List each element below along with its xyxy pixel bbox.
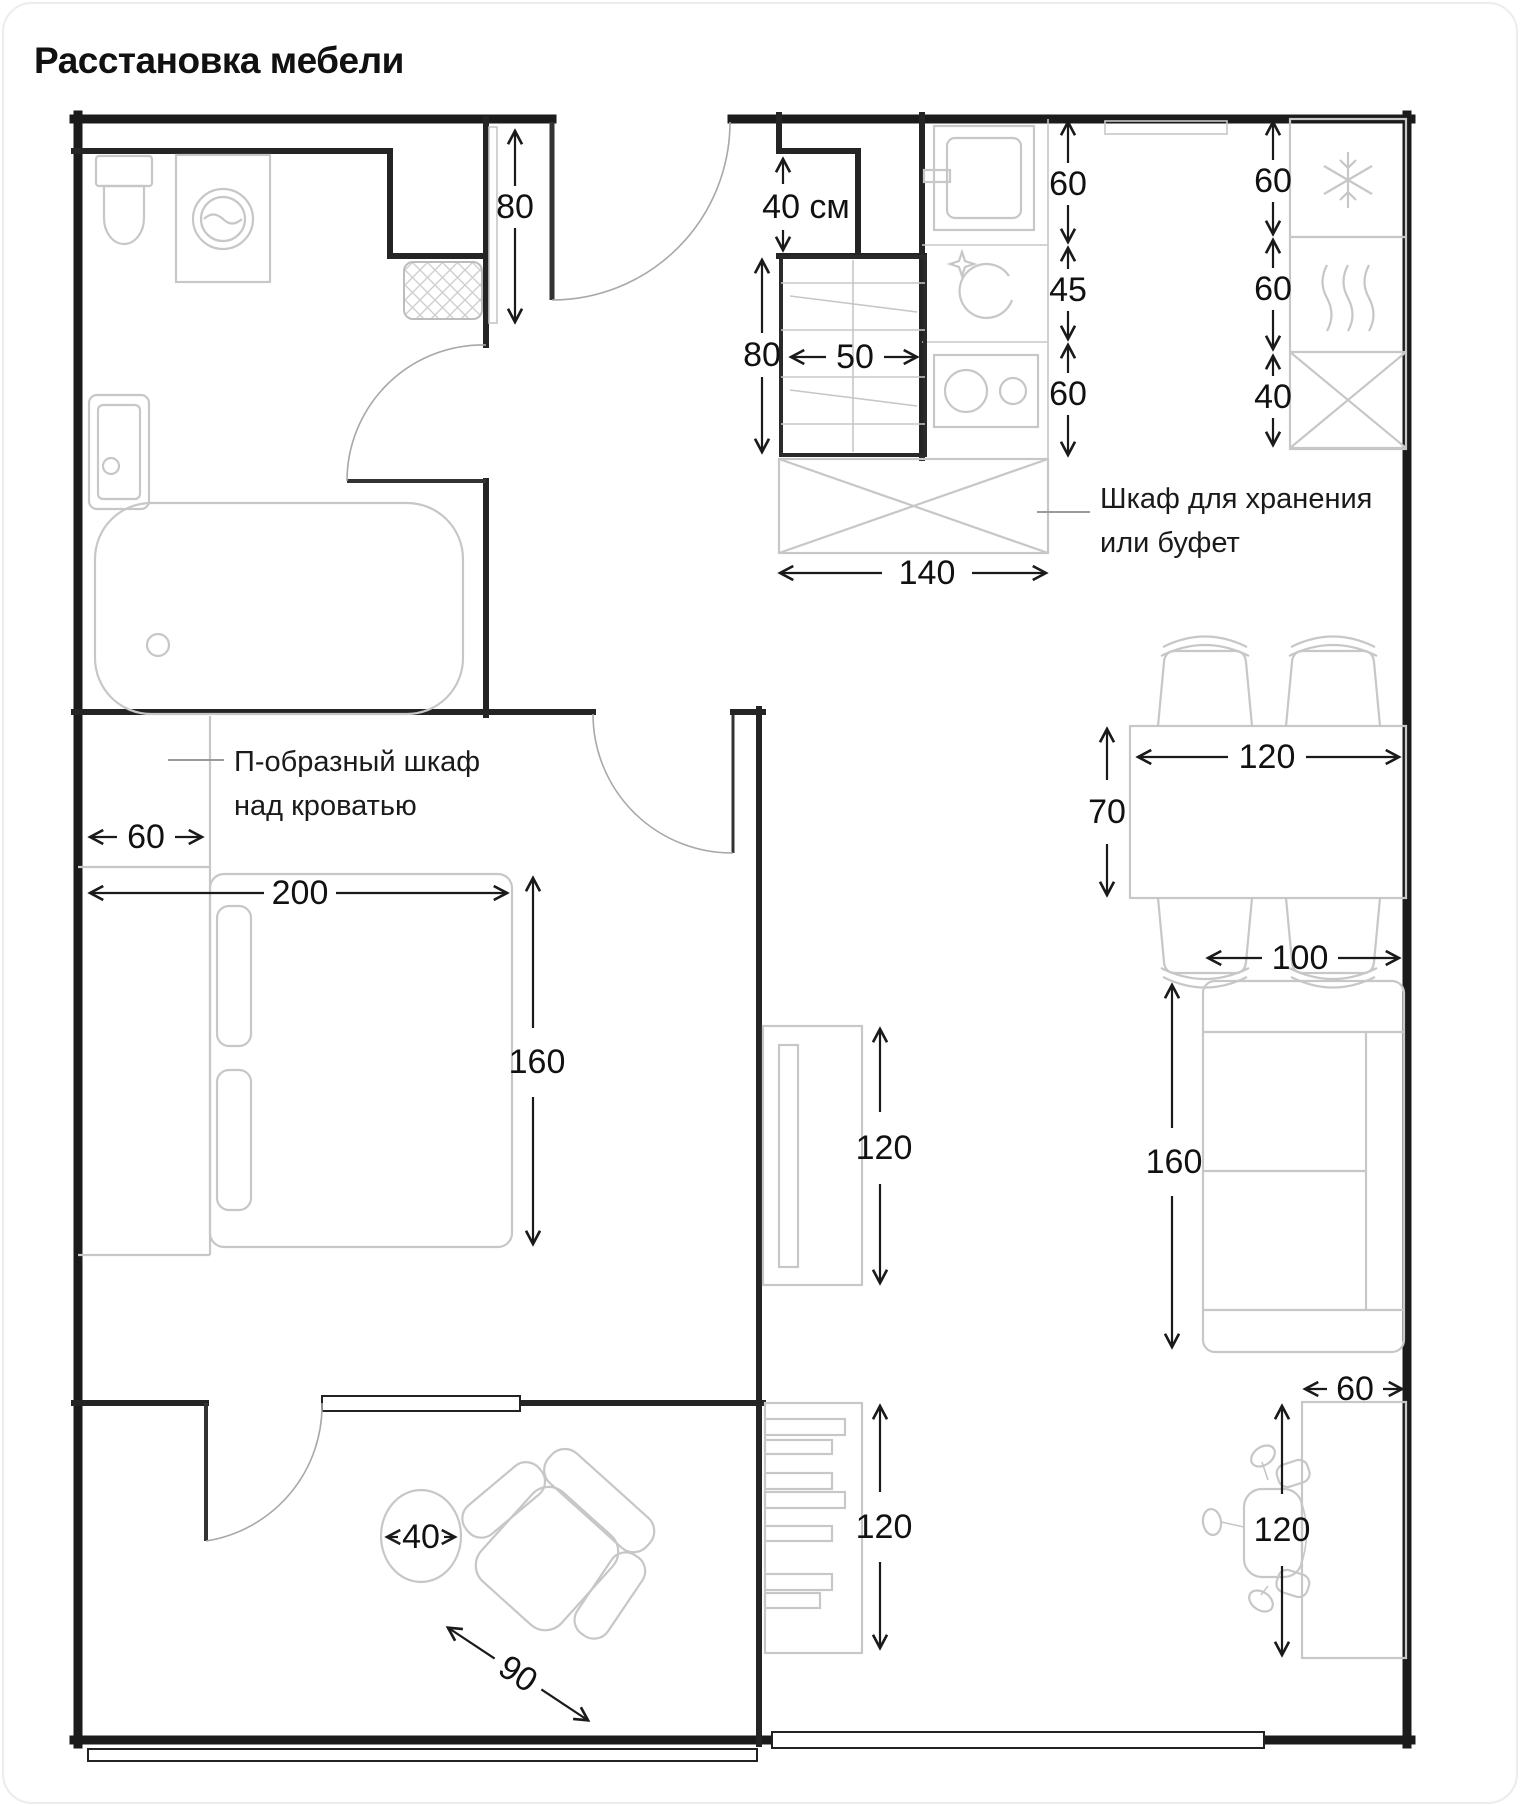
bed [210, 874, 512, 1247]
wardrobe-u-shape [78, 716, 210, 1255]
dim-bed-length: 200 [272, 874, 329, 912]
dim-kitchen-cabinet-width: 50 [836, 338, 874, 376]
dim-balcony-table: 40 [402, 1518, 440, 1556]
steam-waves-icon [1323, 265, 1374, 331]
buffet-crossed-box-icon [779, 459, 1048, 553]
dining-chairs [1158, 637, 1380, 988]
bathtub [95, 503, 463, 714]
bathroom [89, 155, 482, 714]
snowflake-icon [1324, 152, 1372, 208]
dim-armchair-width: 90 [492, 1648, 545, 1701]
interior-walls [74, 115, 924, 1744]
crossed-box-icon [1290, 352, 1406, 448]
pillow [217, 1070, 251, 1210]
doors [206, 122, 733, 1541]
bathroom-door [347, 345, 486, 481]
crosshatch-mat-icon [404, 262, 482, 319]
wardrobe-label-line1: П-образный шкаф [234, 746, 480, 778]
annotations: Шкаф для хранения или буфет П-образный ш… [168, 483, 1372, 822]
dim-buffet-width: 140 [899, 554, 956, 592]
chair [1158, 898, 1252, 988]
dim-dishwasher-width: 45 [1049, 271, 1087, 309]
bedroom-balcony-window [322, 1396, 520, 1411]
washing-machine [176, 155, 270, 282]
dim-duct-niche: 40 см [762, 188, 850, 226]
wardrobe-label-line2: над кроватью [234, 790, 417, 822]
sparkle-wash-icon [950, 252, 1012, 318]
dim-desk-width: 60 [1336, 1370, 1374, 1408]
dimensions: 80 40 см 80 50 60 45 60 140 60 60 4 [90, 122, 1402, 1736]
chair [1158, 637, 1252, 727]
entry-door [552, 122, 730, 300]
tv-console [763, 1026, 862, 1285]
storage-label-line2: или буфет [1100, 527, 1240, 559]
toilet [96, 156, 152, 244]
chair [1286, 637, 1380, 727]
dim-wardrobe-depth: 60 [127, 818, 165, 856]
balcony-glazing [88, 1749, 757, 1761]
tv [779, 1045, 798, 1267]
balcony-door [206, 1403, 322, 1541]
dim-sink-width: 60 [1049, 165, 1087, 203]
sofa [1203, 981, 1404, 1352]
dim-entry-niche: 80 [496, 188, 534, 226]
bedroom-door [593, 714, 733, 853]
floor-plan: 80 40 см 80 50 60 45 60 140 60 60 4 [0, 0, 1520, 1806]
dim-table-width: 120 [1239, 738, 1296, 776]
dim-kitchen-cabinet-depth: 80 [743, 336, 781, 374]
dim-tall-cabinet-width: 40 [1254, 378, 1292, 416]
armchair [435, 1421, 684, 1667]
dim-oven-width: 60 [1254, 270, 1292, 308]
dim-stove-width: 60 [1049, 375, 1087, 413]
dim-bed-width: 160 [509, 1043, 566, 1081]
dim-desk-length: 120 [1254, 1511, 1311, 1549]
washbasin [89, 395, 149, 509]
fridge-column [1290, 119, 1406, 449]
storage-label-line1: Шкаф для хранения [1100, 483, 1372, 515]
dim-sofa-width: 100 [1272, 939, 1329, 977]
dim-sofa-length: 160 [1146, 1143, 1203, 1181]
shelving-unit [765, 1403, 862, 1653]
desk [1302, 1402, 1406, 1658]
dim-freezer-width: 60 [1254, 162, 1292, 200]
living-room-window [772, 1732, 1264, 1748]
kitchen-sink [924, 126, 1034, 230]
dim-table-depth: 70 [1088, 793, 1126, 831]
dim-shelf-length: 120 [856, 1508, 913, 1546]
stove [934, 355, 1038, 427]
dim-tv-console-length: 120 [856, 1129, 913, 1167]
pillow [217, 906, 251, 1046]
